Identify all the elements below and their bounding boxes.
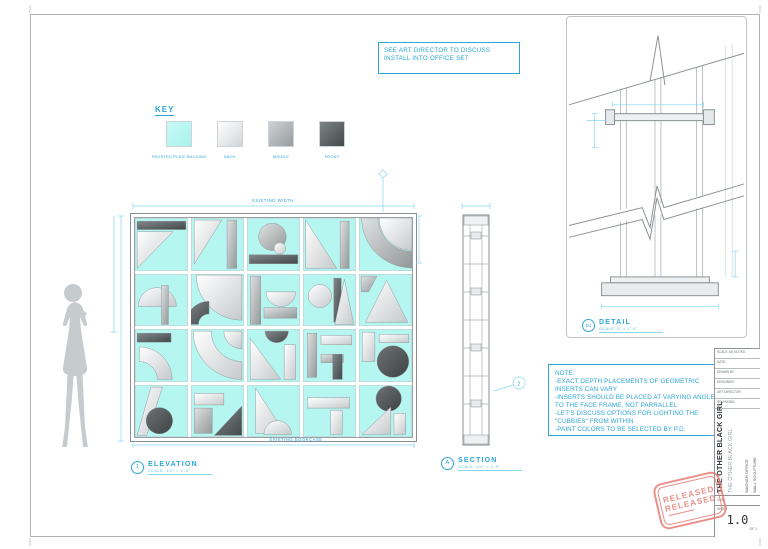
key-swatch-label: FROSTED PLEXI BACKING [152, 154, 207, 159]
elevation-cell-13 [303, 329, 356, 382]
key-swatch-dark [319, 121, 345, 147]
note-block: NOTE: -EXACT DEPTH PLACEMENTS OF GEOMETR… [548, 364, 726, 436]
key-swatch-cyan [166, 121, 192, 147]
stamp-line-2: RELEASED [664, 493, 717, 514]
figure-head [64, 284, 82, 302]
elevation-cell-7 [247, 274, 300, 327]
note-line: -PAINT COLORS TO BE SELECTED BY P.D. [555, 426, 719, 434]
titleblock-field: DRAWN BY: [715, 369, 760, 379]
elevation-scale: SCALE: 1/2" = 1'-0" [148, 468, 212, 473]
art-director-note: SEE ART DIRECTOR TO DISCUSS INSTALL INTO… [378, 42, 520, 74]
elevation-cell-9 [359, 274, 412, 327]
note-line: -LET'S DISCUSS OPTIONS FOR LIGHTING THE … [555, 410, 719, 426]
key-swatch-light [217, 121, 243, 147]
section-scale: SCALE: 1/2" = 1'-0" [458, 464, 522, 469]
elevation-cell-14 [359, 329, 412, 382]
scale-figure-silhouette [33, 283, 105, 447]
titleblock-fields: SCALE: AS NOTEDDATE:DRAWN BY:DESIGNER:AR… [715, 349, 760, 409]
detail-marker: D1 [582, 319, 595, 332]
art-director-note-text: SEE ART DIRECTOR TO DISCUSS INSTALL INTO… [384, 47, 490, 62]
elevation-cell-0 [135, 218, 188, 271]
set-name: WAGNER OFFICE [744, 411, 749, 493]
elevation-cell-18 [303, 385, 356, 438]
key-swatches: FROSTED PLEXI BACKINGBACKMIDDLEFRONT [166, 121, 345, 159]
detail-title-group: D1 DETAIL SCALE: 3" = 1'-0" [582, 319, 663, 333]
section-marker: A [441, 457, 454, 470]
section-title-group: A SECTION SCALE: 1/2" = 1'-0" [441, 457, 522, 471]
elevation-cell-10 [135, 329, 188, 382]
titleblock-field: ART DIRECTOR: [715, 389, 760, 399]
elevation-cell-17 [247, 385, 300, 438]
show-subtitle: THE OTHER BLACK GIRL [728, 411, 734, 493]
elevation-grid [134, 217, 413, 438]
stamp-line-1: RELEASED [662, 484, 715, 505]
detail-scale: SCALE: 3" = 1'-0" [599, 326, 663, 331]
elevation-cell-15 [135, 385, 188, 438]
detail-title: DETAIL [599, 319, 663, 326]
titleblock-field: DESIGNER: [715, 379, 760, 389]
elevation-cell-2 [247, 218, 300, 271]
titleblock-field: SCALE: AS NOTED [715, 349, 760, 359]
titleblock-main: THE OTHER BLACK GIRL THE OTHER BLACK GIR… [715, 409, 760, 496]
key-title: KEY [155, 105, 174, 116]
elevation-title: ELEVATION [148, 461, 212, 468]
elevation-cell-5 [135, 274, 188, 327]
elevation-cell-19 [359, 385, 412, 438]
titleblock-field: DATE: [715, 359, 760, 369]
key-item-light: BACK [217, 121, 243, 159]
key-swatch-label: FRONT [325, 154, 340, 159]
key-swatch-label: MIDDLE [273, 154, 289, 159]
detail-drawing [567, 17, 746, 337]
elevation-marker: 1 [131, 461, 144, 474]
elevation-cell-3 [303, 218, 356, 271]
key-item-mid: MIDDLE [268, 121, 294, 159]
elevation-cell-6 [191, 274, 244, 327]
note-lines: -EXACT DEPTH PLACEMENTS OF GEOMETRIC INS… [555, 378, 719, 434]
note-heading: NOTE: [555, 370, 719, 377]
figure-body [61, 302, 88, 447]
section-title: SECTION [458, 457, 522, 464]
key-swatch-label: BACK [224, 154, 236, 159]
stamp-date-line [669, 509, 695, 516]
key-item-dark: FRONT [319, 121, 345, 159]
elevation-cell-12 [247, 329, 300, 382]
elevation-cell-11 [191, 329, 244, 382]
elevation-title-group: 1 ELEVATION SCALE: 1/2" = 1'-0" [131, 461, 212, 475]
key-item-cyan: FROSTED PLEXI BACKING [166, 121, 192, 159]
section-drawing [462, 214, 490, 446]
elevation-cell-8 [303, 274, 356, 327]
elevation-cell-1 [191, 218, 244, 271]
elevation-view [130, 213, 417, 442]
elevation-cell-16 [191, 385, 244, 438]
elevation-cell-4 [359, 218, 412, 271]
key-swatch-mid [268, 121, 294, 147]
note-line: -INSERTS SHOULD BE PLACED AT VARYING ANG… [555, 394, 719, 410]
drawing-name: WALL SCULPTURE [752, 411, 757, 493]
detail-view [566, 16, 747, 338]
note-line: -EXACT DEPTH PLACEMENTS OF GEOMETRIC INS… [555, 378, 719, 394]
sheet-of: OF 1 [749, 527, 757, 531]
